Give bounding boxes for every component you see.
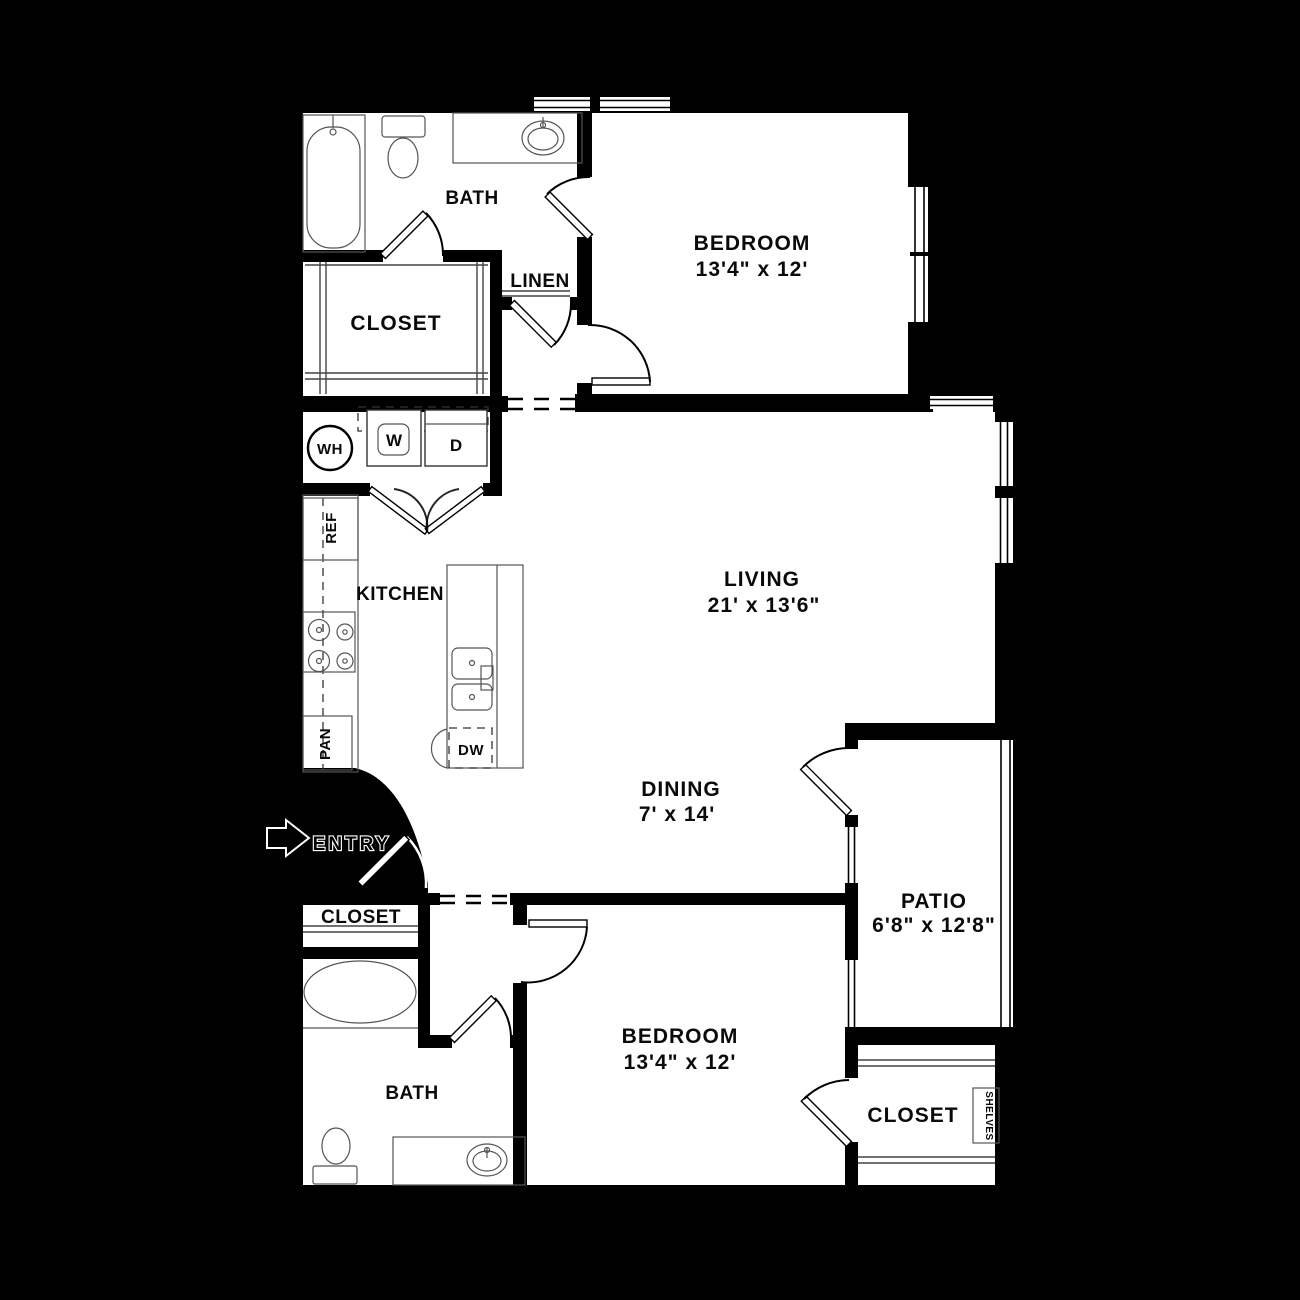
label-water-heater: WH — [317, 441, 343, 458]
dims-bedroom2: 13'4" x 12' — [624, 1051, 737, 1074]
label-pantry: PAN — [317, 728, 334, 760]
floor-plan-page: BATH CLOSET LINEN BEDROOM 13'4" x 12' LI… — [0, 0, 1300, 1300]
label-living: LIVING — [724, 568, 800, 591]
window-dining-patio — [845, 827, 858, 883]
dims-bedroom1: 13'4" x 12' — [696, 258, 809, 281]
label-washer: W — [386, 431, 403, 450]
dims-patio: 6'8" x 12'8" — [872, 914, 996, 937]
label-closet-top: CLOSET — [350, 312, 441, 335]
label-kitchen: KITCHEN — [356, 584, 444, 605]
label-bedroom1: BEDROOM — [694, 232, 811, 255]
window-living-top — [930, 396, 993, 409]
label-bedroom2: BEDROOM — [622, 1025, 739, 1048]
label-bath-top: BATH — [445, 188, 498, 209]
label-patio: PATIO — [901, 890, 967, 913]
label-entry: ENTRY — [313, 834, 392, 855]
label-dining: DINING — [641, 778, 721, 801]
window-living-right-1 — [997, 422, 1011, 486]
window-top-bedroom — [600, 97, 670, 111]
floor-plan-drawing: BATH CLOSET LINEN BEDROOM 13'4" x 12' LI… — [0, 0, 1300, 1300]
label-bath-bottom: BATH — [385, 1083, 438, 1104]
window-bedroom2-patio — [845, 960, 858, 1027]
label-dishwasher: DW — [458, 742, 484, 759]
label-shelves: SHELVES — [983, 1091, 994, 1140]
label-dryer: D — [450, 436, 462, 455]
dims-dining: 7' x 14' — [639, 803, 715, 826]
label-closet-entry: CLOSET — [321, 907, 401, 928]
label-linen: LINEN — [510, 271, 570, 292]
window-top-bath — [534, 97, 590, 111]
window-bedroom1-right — [910, 187, 928, 322]
dims-living: 21' x 13'6" — [708, 594, 821, 617]
label-closet-bottom: CLOSET — [867, 1104, 958, 1127]
window-living-right-2 — [997, 498, 1011, 563]
label-refrigerator: REF — [323, 512, 340, 544]
